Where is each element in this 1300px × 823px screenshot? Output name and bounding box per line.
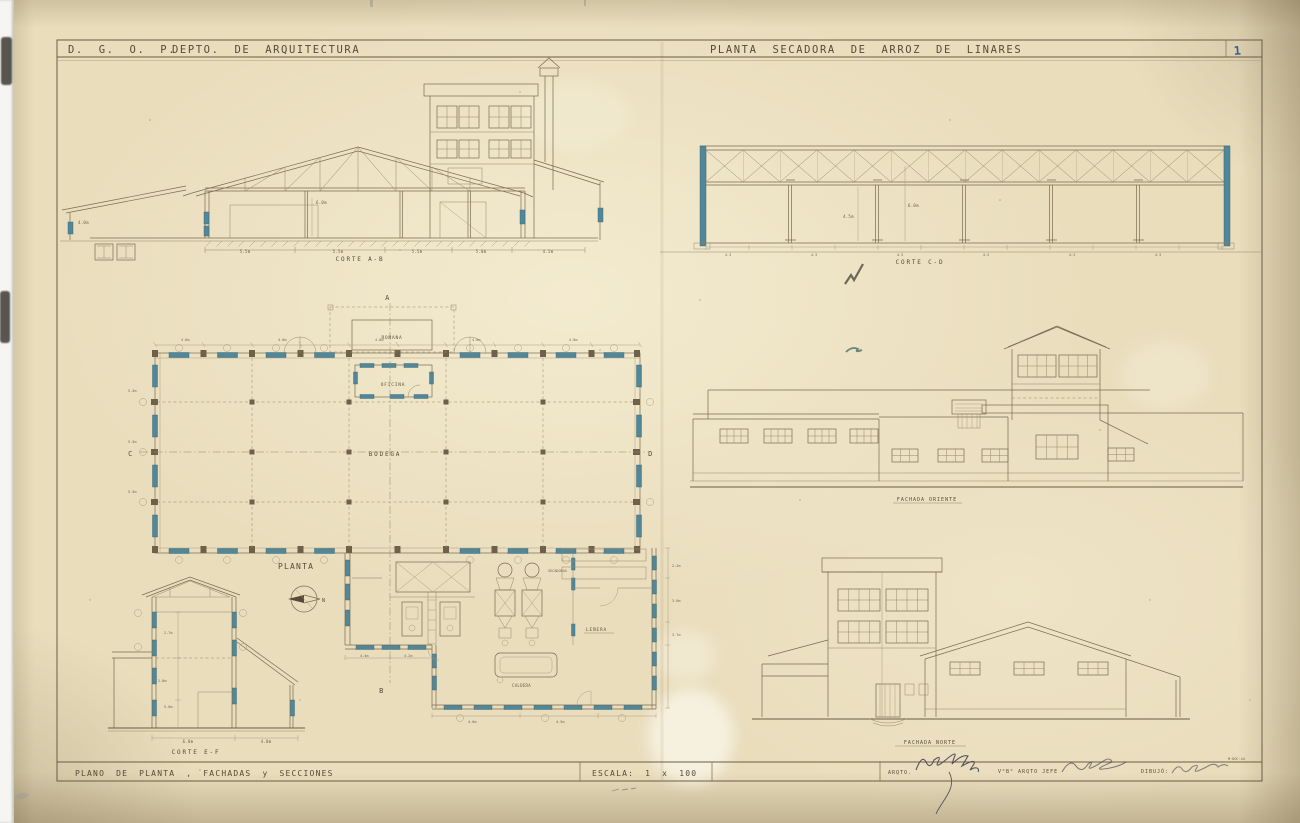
dim-label: 4.8m	[181, 338, 189, 342]
tower-norte	[822, 558, 942, 726]
dim-label: 4.4m	[360, 654, 368, 658]
dim-label: 4.8m	[278, 338, 286, 342]
secadoras-label: SECADORAS	[548, 569, 567, 573]
dim-label: 4.5m	[556, 720, 564, 724]
fachada-norte-label: FACHADA NORTE	[904, 740, 956, 746]
dibujo-label: DIBUJÓ:	[1141, 768, 1169, 775]
project-title: PLANTA SECADORA DE ARROZ DE LINARES	[710, 44, 1022, 56]
axis-b-label: B	[379, 687, 385, 695]
dim-label: 4.8m	[569, 338, 577, 342]
corte-cd-section-drawing: 4.3 4.3 4.3 4.3 4.3 4.3 4.5m 6.0m CORTE …	[660, 146, 1262, 284]
dryer-units: SECADORAS	[495, 563, 567, 646]
dim-label: 5.5m	[128, 490, 136, 494]
corte-cd-label: CORTE C-D	[896, 259, 945, 266]
rail-beam-detail	[95, 244, 135, 260]
ef-axis-bubbles	[135, 610, 247, 651]
lenera-label: LEÑERA	[586, 626, 607, 633]
dim-label: 5.5m	[412, 249, 423, 254]
fachada-oriente-label: FACHADA ORIENTE	[897, 497, 957, 503]
arqto-label: ARQTO.	[888, 770, 912, 776]
dim-label: 4.3	[1069, 253, 1075, 257]
dim-label: 4.0m	[468, 720, 476, 724]
title-strip: D. G. O. P. DEPTO. DE ARQUITECTURA PLANT…	[68, 44, 1241, 58]
draftsman-signature	[1172, 764, 1228, 773]
annex-axis-bubbles	[457, 715, 626, 722]
dim-label: 5.0m	[164, 705, 172, 709]
ink-smudge	[846, 348, 862, 352]
axis-a-label: A	[385, 294, 391, 302]
dim-label: 5.0m	[476, 249, 487, 254]
dim-label: 4.0m	[78, 220, 89, 225]
dim-label: 5.5m	[128, 440, 136, 444]
corte-ef-label: CORTE E-F	[172, 749, 221, 756]
oficina-room: OFICINA	[354, 364, 434, 399]
org-abbreviation: D. G. O. P.	[68, 44, 176, 56]
axis-c-label: C	[128, 450, 134, 458]
date-code: M·DGC·44	[1228, 757, 1245, 761]
fachada-norte-elevation: FACHADA NORTE	[752, 558, 1190, 746]
left-annex-norte	[762, 640, 828, 717]
caldera-label: CALDERA	[512, 683, 531, 688]
chief-architect-signature	[1062, 759, 1126, 772]
dim-label: 6.0m	[316, 200, 327, 205]
dim-label: 6.0m	[908, 203, 919, 208]
dim-label: 5.5m	[333, 249, 344, 254]
dim-label: 5.5m	[128, 389, 136, 393]
hatched-panel	[448, 168, 482, 184]
dim-label: 5.5m	[240, 249, 251, 254]
dust-speckles	[89, 0, 1250, 771]
oficina-label: OFICINA	[381, 382, 406, 388]
north-label: N	[322, 598, 326, 604]
dim-label: 4.8m	[472, 338, 480, 342]
roof-monitor-vent	[952, 400, 986, 428]
dim-label: 4.5m	[543, 249, 554, 254]
dim-label: 2.2m	[672, 564, 680, 568]
department-title: DEPTO. DE ARQUITECTURA	[172, 44, 360, 56]
blueprint-linework: D. G. O. P. DEPTO. DE ARQUITECTURA PLANT…	[0, 0, 1300, 823]
chimney	[538, 58, 560, 190]
dim-label: 4.3	[811, 253, 817, 257]
dim-label: 4.3	[1155, 253, 1161, 257]
dim-label: 4.2m	[404, 654, 412, 658]
tower-oriente	[982, 326, 1110, 420]
bodega-label: BODEGA	[369, 451, 401, 458]
fachada-oriente-elevation: FACHADA ORIENTE	[690, 326, 1243, 503]
corner-stamp-smudge	[15, 792, 30, 801]
dim-label: 4.3	[897, 253, 903, 257]
planta-label: PLANTA	[278, 562, 314, 571]
vobo-arqto-jefe-label: V°B° ARQTO JEFE	[998, 769, 1058, 775]
architect-signature	[916, 754, 979, 814]
pencil-checkmark	[845, 264, 863, 284]
romana-label: ROMANA	[381, 335, 402, 341]
pencil-note	[612, 788, 636, 791]
dim-label: 4.0m	[261, 739, 272, 744]
dim-label: 6.0m	[183, 739, 194, 744]
scale-label: ESCALA: 1 x 100	[592, 769, 697, 778]
dim-label: 3.7m	[672, 633, 680, 637]
north-compass: N	[288, 586, 326, 612]
dim-label: 2.8m	[158, 679, 166, 683]
dim-label: 4.8m	[375, 338, 383, 342]
footer-sheet-title: PLANO DE PLANTA , FACHADAS y SECCIONES	[75, 769, 334, 778]
scanned-blueprint-sheet: D. G. O. P. DEPTO. DE ARQUITECTURA PLANT…	[0, 0, 1300, 823]
hopper-and-mills	[390, 562, 475, 644]
corte-ab-label: CORTE A-B	[336, 256, 385, 263]
dim-label: 3.0m	[672, 599, 680, 603]
axis-d-label: D	[648, 450, 654, 458]
gable-hall-norte	[920, 622, 1180, 717]
corte-ef-section-drawing: 2.7m 2.8m 5.0m 6.0m 4.0m CORTE E-F	[108, 577, 305, 756]
corte-ab-section-drawing: 5.5m 5.5m 5.5m 5.0m 4.5m 6.0m 4.0m CORTE…	[60, 58, 604, 263]
dim-label: 4.3	[725, 253, 731, 257]
caldera-boiler: CALDERA	[495, 653, 557, 688]
footer-strip: PLANO DE PLANTA , FACHADAS y SECCIONES E…	[15, 754, 1245, 814]
dim-label: 4.5m	[843, 214, 854, 219]
sheet-number: 1	[1233, 44, 1241, 58]
dim-label: 2.7m	[164, 631, 172, 635]
plan-annex-drying-wing: LEÑERA SECADORAS	[345, 548, 680, 724]
dim-label: 4.3	[983, 253, 989, 257]
